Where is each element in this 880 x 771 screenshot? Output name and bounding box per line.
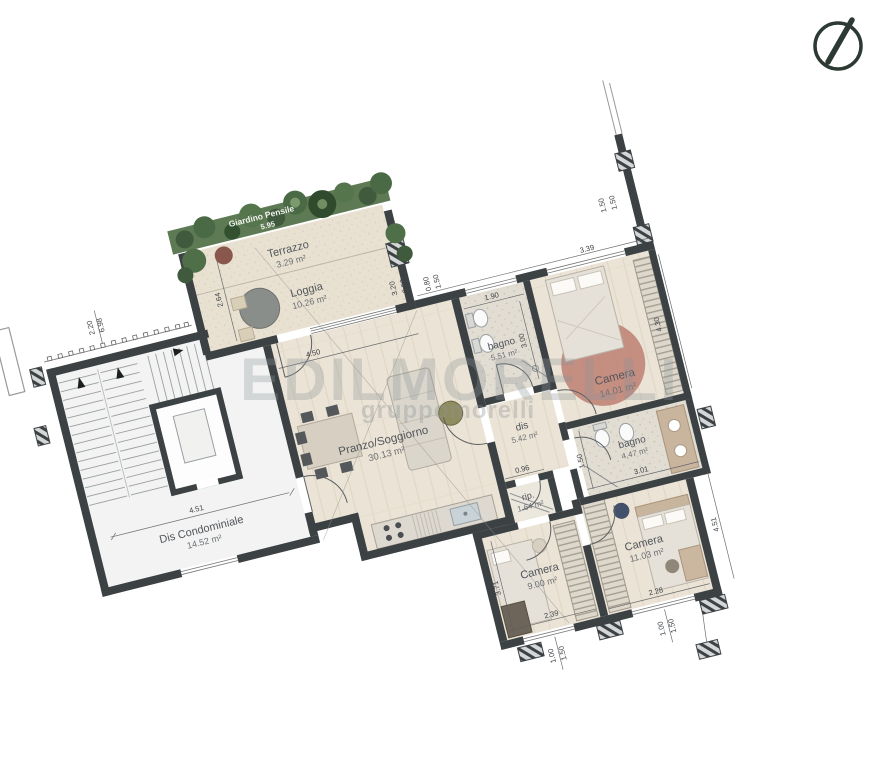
compass-needle-icon (828, 20, 852, 62)
dim-win2-b: 1.50 (666, 618, 678, 634)
floorplan-page: Giardino Pensile 5.95 Terrazzo 3.29 m² L… (0, 0, 880, 771)
floorplan-canvas: Giardino Pensile 5.95 Terrazzo 3.29 m² L… (0, 0, 880, 771)
dim-win1-b: 1.50 (556, 645, 568, 661)
stub-railing (603, 79, 622, 135)
watermark: EDILMORELLI gruppomorelli (240, 346, 680, 424)
dim-stub-b: 1.50 (607, 194, 619, 210)
dim-camera1-w: 3.39 (579, 243, 595, 255)
watermark-line2: gruppomorelli (361, 397, 535, 424)
north-indicator (815, 20, 861, 69)
left-stub (0, 328, 25, 396)
